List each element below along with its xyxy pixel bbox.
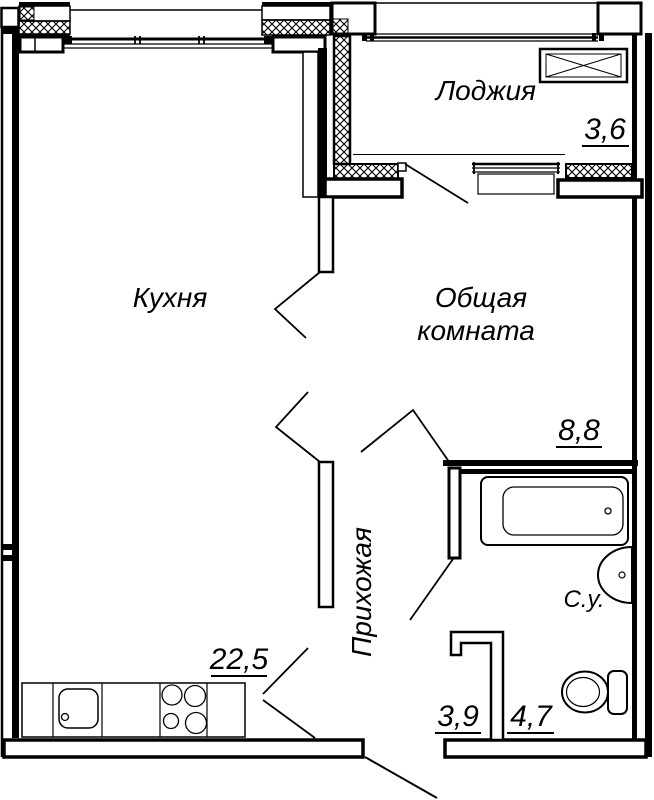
bathroom-top-wall-inner <box>459 469 632 474</box>
living-room-label-line1: Общая <box>435 282 527 313</box>
kitchen-pier-left-hatch <box>19 21 70 34</box>
bottom-wall-left-band <box>4 740 363 757</box>
kitchen-hallway-partition-lower <box>319 462 333 607</box>
living-room-area-value: 8,8 <box>558 414 600 447</box>
opening-chevron-kitchen-hallway-a <box>263 648 308 694</box>
loggia-label: Лоджия <box>434 75 536 106</box>
opening-chevron-hallway-room <box>361 410 452 466</box>
loggia-corner-hatch-cell <box>333 19 348 33</box>
balcony-wall-hatch-left <box>334 164 398 179</box>
left-wall-top-bar <box>1 27 19 34</box>
window-sill-projection <box>478 174 554 194</box>
loggia-left-wall-hatch <box>334 36 350 164</box>
vent-box-icon <box>540 49 627 82</box>
balcony-door-leaf <box>405 164 468 203</box>
left-wall-inner-bar <box>12 34 19 738</box>
duct-shaft <box>303 52 318 197</box>
bathroom-area-value: 4,7 <box>510 700 553 733</box>
left-wall-top-block <box>2 8 19 27</box>
balcony-door-window <box>398 162 560 203</box>
bathroom-door-leaf <box>410 559 453 620</box>
opening-chevron-kitchen-hallway-b <box>263 700 315 738</box>
kitchen-label: Кухня <box>133 282 208 313</box>
bathroom-label: С.у. <box>563 586 604 613</box>
window-end-left <box>63 36 72 44</box>
hallway-area-value: 3,9 <box>437 700 479 733</box>
loggia-left-wall-face <box>318 48 327 197</box>
bathroom-left-wall <box>449 468 460 558</box>
loggia-glazing <box>362 33 604 41</box>
toilet-icon <box>562 671 627 714</box>
toilet-tank <box>608 671 627 714</box>
kitchen-area-value: 22,5 <box>209 643 269 676</box>
kitchen-pier-left-hatch-cell <box>20 7 34 20</box>
kitchen-sink-icon <box>59 689 98 728</box>
balcony-door-jamb <box>398 163 406 171</box>
opening-chevron-kitchen-room-lower <box>276 392 320 462</box>
kitchen-room-partition-upper <box>319 197 333 272</box>
loggia-area-value: 3,6 <box>584 113 626 146</box>
left-wall-joint-mark-1 <box>2 544 18 550</box>
kitchen-sill-pier-right <box>273 37 325 52</box>
kitchen-counter <box>22 683 245 737</box>
balcony-pier-right <box>558 180 642 197</box>
interior-partitions <box>319 197 638 740</box>
left-wall-joint-mark-2 <box>2 555 18 561</box>
bathroom-top-wall <box>443 460 638 466</box>
balcony-pier-left <box>325 179 402 197</box>
loggia-corner-block-right <box>598 3 641 34</box>
kitchen-window <box>63 36 273 48</box>
kitchen-sill-pier-left <box>20 37 63 52</box>
opening-chevron-kitchen-room-upper <box>275 272 320 338</box>
bottom-wall-right-band <box>445 740 646 757</box>
hallway-label: Прихожая <box>346 527 377 657</box>
living-room-label-line2: комната <box>417 315 535 346</box>
bathtub-icon <box>481 477 628 545</box>
right-wall-inner-bar <box>632 33 637 740</box>
floor-plan: Кухня Общая комната Лоджия Прихожая С.у.… <box>0 0 654 800</box>
floor-plan-svg: Кухня Общая комната Лоджия Прихожая С.у.… <box>0 0 654 800</box>
right-wall-outer-bar <box>645 33 652 757</box>
entry-door-leaf <box>365 757 437 798</box>
kitchen-pier-right-hatch <box>262 20 330 35</box>
kitchen-pier-right-top <box>262 6 330 20</box>
balcony-wall-hatch-right <box>566 164 632 178</box>
